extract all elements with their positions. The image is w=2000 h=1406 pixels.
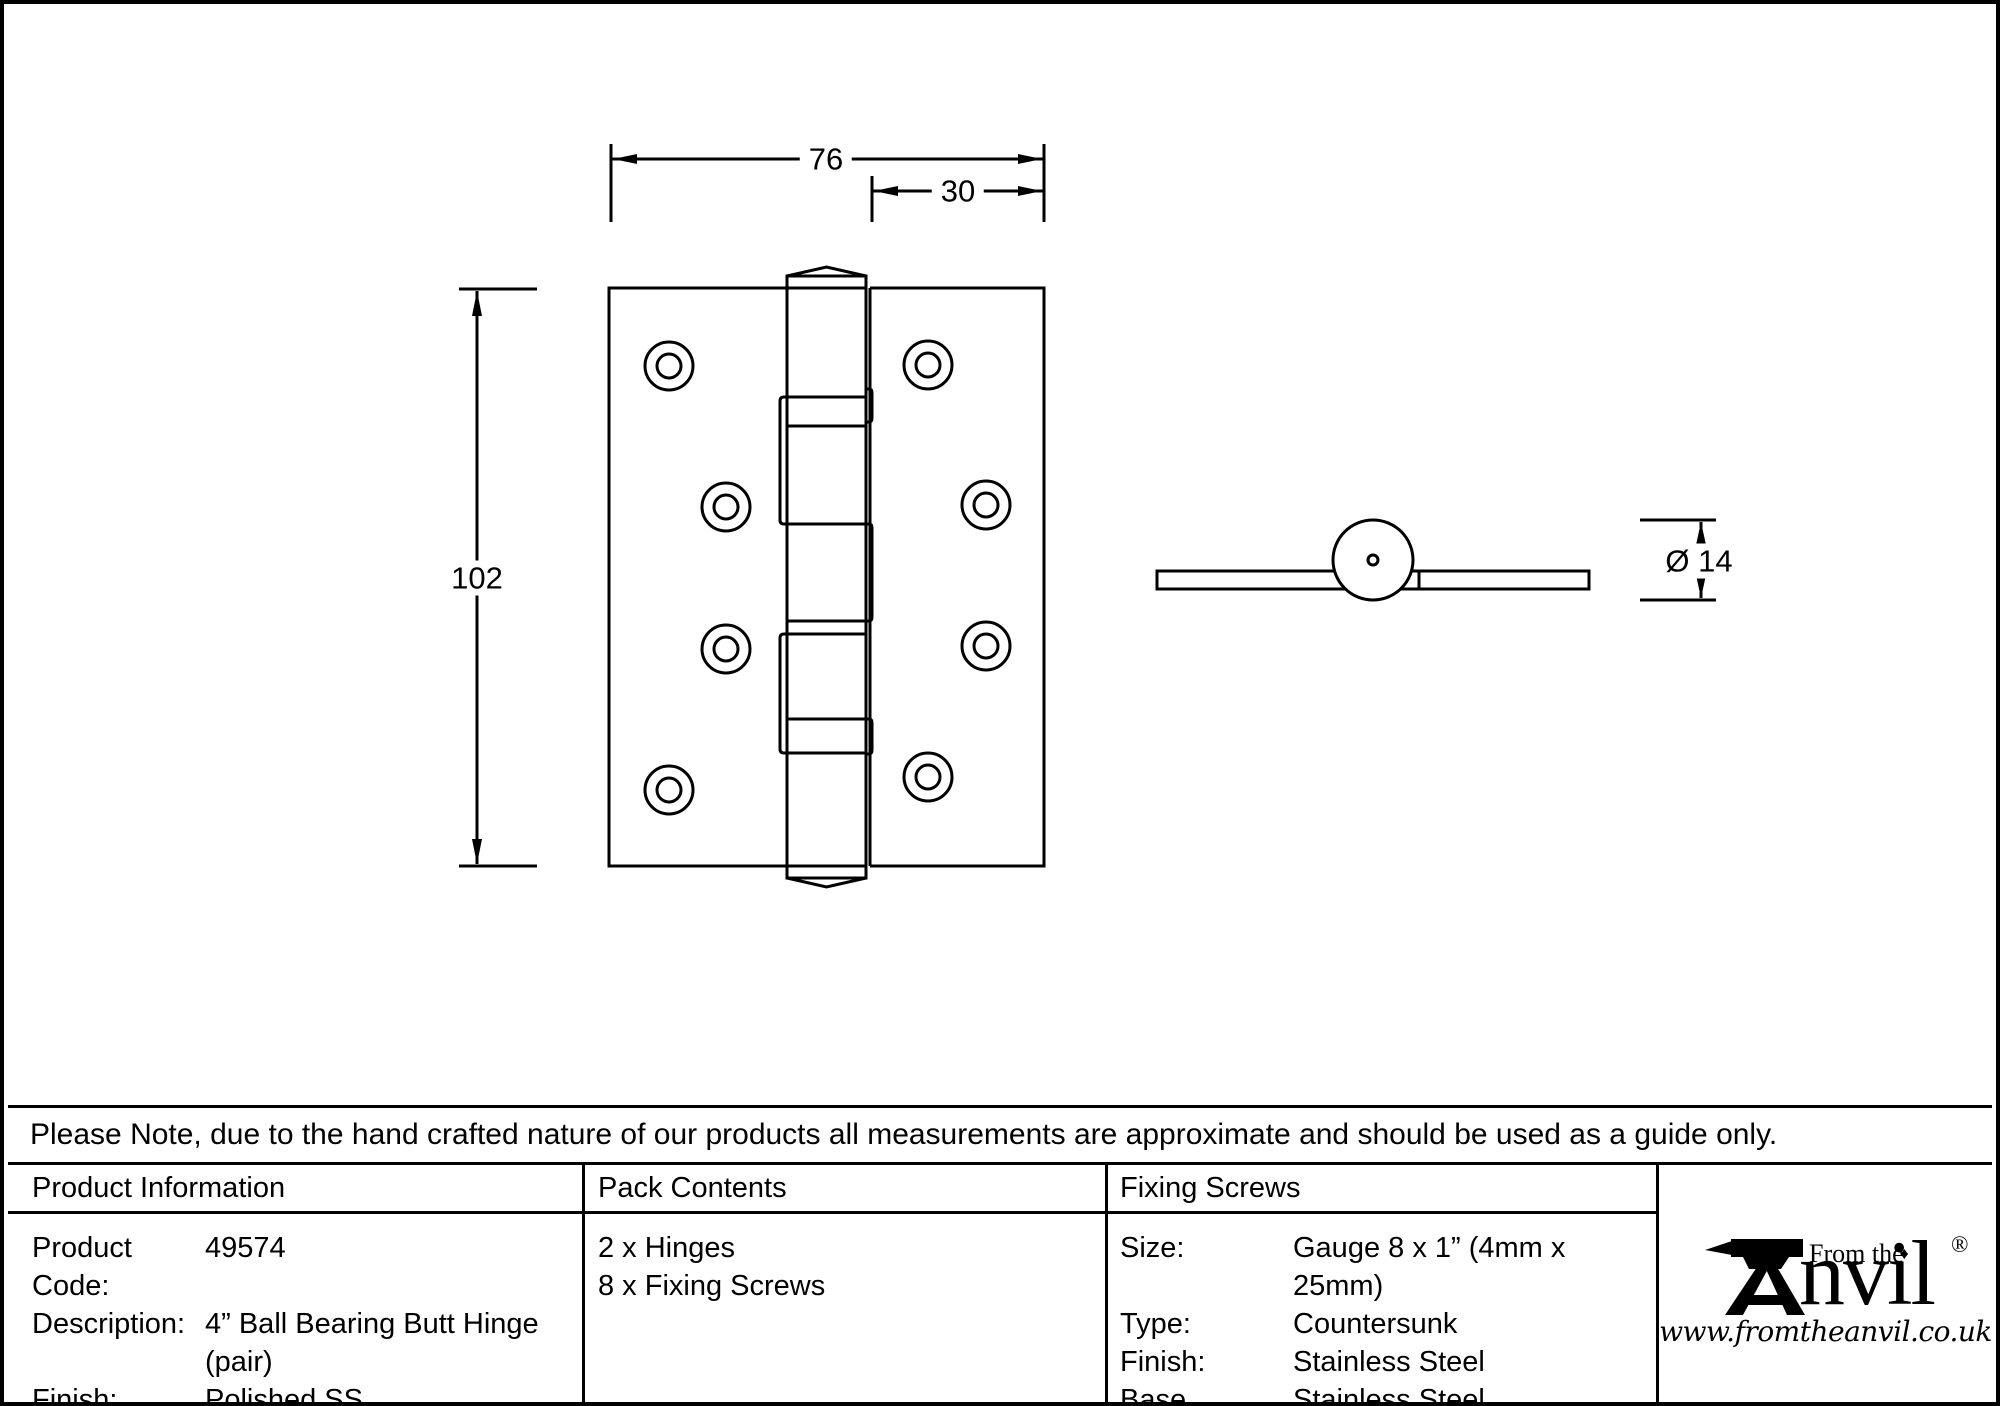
spec-row: Finish: Polished SS [32,1381,582,1406]
spec-label: Type: [1120,1305,1293,1343]
product-spec-table: Product Information Pack Contents Fixing… [8,1165,1992,1398]
dim-label-width: 76 [800,142,852,177]
header-pack-contents-label: Pack Contents [598,1172,787,1205]
spec-label: Base Material: [1120,1381,1293,1406]
hinge-front-view [609,267,1044,887]
spec-label: Size: [1120,1229,1293,1305]
spec-sheet-page: 76 30 102 Ø 14 Please Note, due to the h… [0,0,2000,1406]
header-product-information: Product Information [8,1165,585,1214]
header-pack-contents: Pack Contents [585,1165,1108,1214]
pack-content-item: 8 x Fixing Screws [598,1267,1105,1305]
spec-value: 49574 [205,1229,286,1305]
anvil-icon [1705,1237,1805,1315]
left-leaf [609,288,787,866]
right-leaf [870,288,1044,866]
pack-content-item: 2 x Hinges [598,1229,1105,1267]
dim-label-diameter: Ø 14 [1656,544,1741,579]
spec-row: Product Code: 49574 [32,1229,582,1305]
knuckle-barrel [1333,520,1413,600]
hinge-side-view [1157,520,1589,600]
spec-value: 4” Ball Bearing Butt Hinge (pair) [205,1305,582,1381]
spec-value: Stainless Steel [1293,1343,1485,1381]
logo-anvil-wordmark: nvil [1799,1227,1934,1319]
spec-row: Base Material: Stainless Steel [1120,1381,1656,1406]
screw-holes-right [904,341,1010,801]
fixing-screws-body: Size: Gauge 8 x 1” (4mm x 25mm) Type: Co… [1108,1214,1659,1406]
hinge-barrel [787,276,866,878]
dim-label-height: 102 [442,561,512,596]
spec-row: Size: Gauge 8 x 1” (4mm x 25mm) [1120,1229,1656,1305]
screw-holes-left [645,342,750,814]
knuckle-joints [780,389,872,754]
pack-contents-body: 2 x Hinges 8 x Fixing Screws [585,1214,1108,1406]
spec-label: Description: [32,1305,205,1381]
spec-label: Finish: [32,1381,205,1406]
dim-label-leaf: 30 [932,174,984,209]
logo-website-url: www.fromtheanvil.co.uk [1659,1315,1992,1348]
header-product-information-label: Product Information [32,1172,285,1205]
spec-value: Gauge 8 x 1” (4mm x 25mm) [1293,1229,1656,1305]
measurement-note-text: Please Note, due to the hand crafted nat… [30,1118,1777,1152]
spec-row: Description: 4” Ball Bearing Butt Hinge … [32,1305,582,1381]
spec-value: Countersunk [1293,1305,1457,1343]
spec-row: Finish: Stainless Steel [1120,1343,1656,1381]
measurement-note-bar: Please Note, due to the hand crafted nat… [8,1105,1992,1165]
spec-label: Finish: [1120,1343,1293,1381]
spec-value: Stainless Steel [1293,1381,1485,1406]
spec-value: Polished SS [205,1381,363,1406]
brand-logo-cell: From the ♦ nvil ® www.fromtheanvil.co.uk [1659,1165,1992,1406]
header-fixing-screws-label: Fixing Screws [1120,1172,1301,1205]
product-information-body: Product Code: 49574 Description: 4” Ball… [8,1214,585,1406]
spec-row: Type: Countersunk [1120,1305,1656,1343]
header-fixing-screws: Fixing Screws [1108,1165,1659,1214]
registered-trademark-icon: ® [1951,1233,1968,1256]
spec-label: Product Code: [32,1229,205,1305]
